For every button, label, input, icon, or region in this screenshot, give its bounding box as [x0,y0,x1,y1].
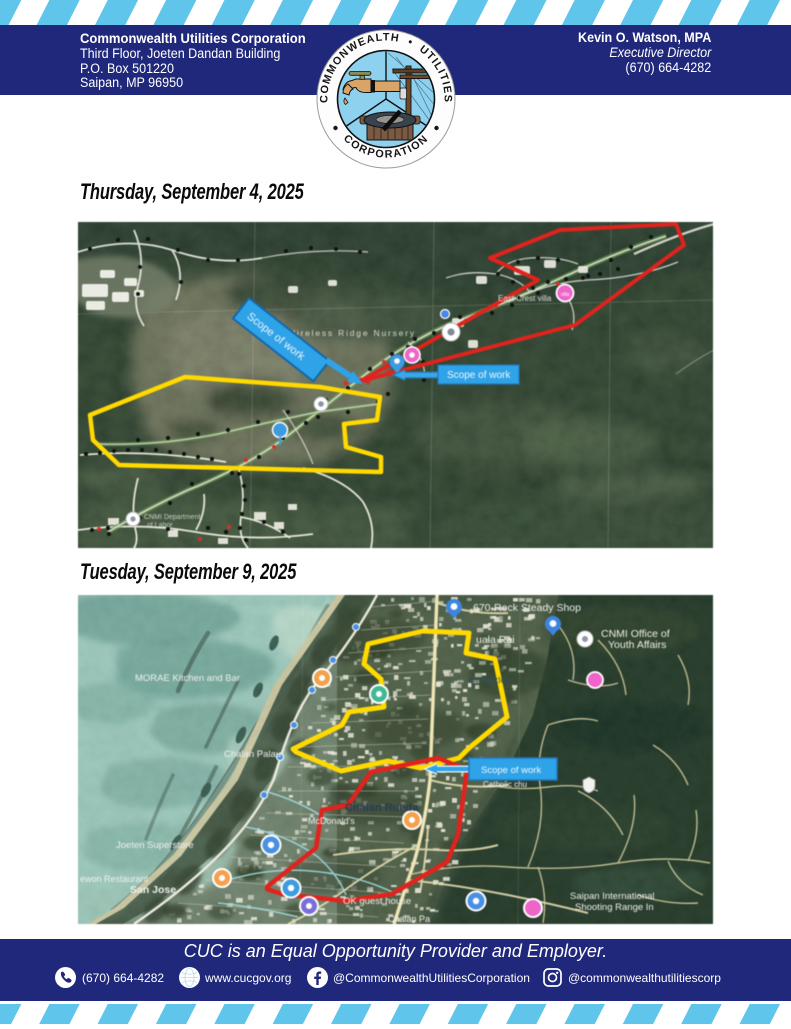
svg-text:Scope of work: Scope of work [447,370,511,381]
svg-text:Joeten Superstore: Joeten Superstore [116,840,194,851]
svg-text:Saipan International: Saipan International [570,891,655,902]
svg-text:of Labor: of Labor [147,522,173,529]
svg-text:CNMI Department: CNMI Department [144,514,200,521]
svg-text:670-Rock Steady Shop: 670-Rock Steady Shop [473,602,581,614]
svg-text:Scope of work: Scope of work [481,765,541,776]
svg-text:ewon Restaurant: ewon Restaurant [80,874,149,884]
svg-text:Chalan Rueda: Chalan Rueda [345,802,419,814]
svg-text:villa: villa [561,292,570,298]
svg-text:Chalan Pa: Chalan Pa [388,914,430,924]
svg-text:MORAE Kitchen and Bar: MORAE Kitchen and Bar [135,673,240,684]
svg-text:Shooting Range In: Shooting Range In [575,902,654,913]
svg-text:un Garden: un Garden [468,675,511,685]
svg-text:East Crest villa: East Crest villa [498,294,552,303]
svg-text:uala Rai: uala Rai [476,634,515,646]
svg-text:OK guest house: OK guest house [343,896,411,907]
svg-text:Youth Affairs: Youth Affairs [608,639,666,651]
svg-text:Chalan Palau: Chalan Palau [224,749,281,760]
svg-text:Catholic chu: Catholic chu [483,780,527,789]
svg-text:McDonald's: McDonald's [308,816,355,826]
svg-text:San Jose: San Jose [130,884,176,896]
svg-text:Wireless Ridge Nursery: Wireless Ridge Nursery [287,328,416,338]
